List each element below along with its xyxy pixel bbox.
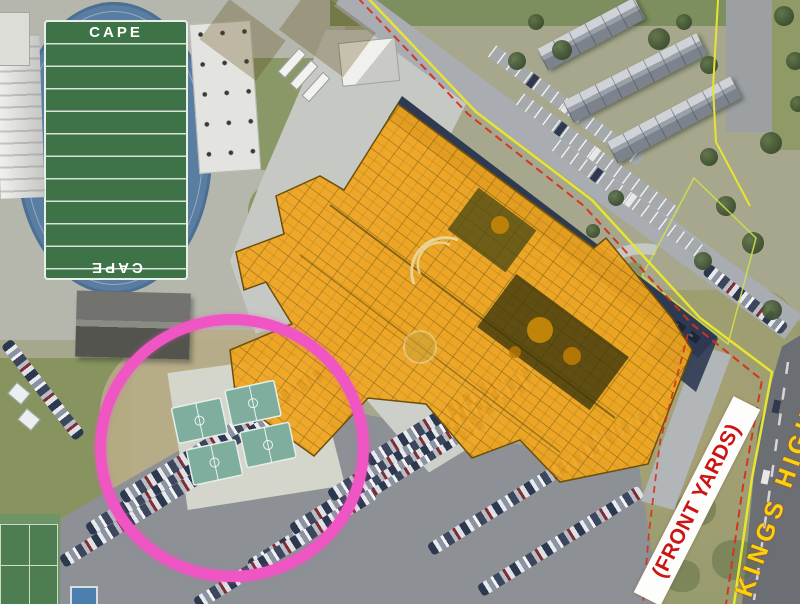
aerial-campus-map: CAPE CAPE [0, 0, 800, 604]
courtyard-planting [527, 317, 553, 343]
tree [676, 14, 692, 30]
small-building [338, 37, 400, 87]
courtyard-planting [509, 346, 521, 358]
tree [700, 148, 718, 166]
tree [508, 52, 526, 70]
building-topleft [0, 12, 30, 66]
tree [694, 252, 712, 270]
endzone-label-bottom: CAPE [46, 259, 186, 276]
tree [700, 56, 718, 74]
grandstand-east [189, 20, 261, 174]
tree [552, 40, 572, 60]
tree [790, 96, 800, 112]
auditorium-seating-arc [412, 238, 458, 284]
tree [528, 14, 544, 30]
auditorium-seating-arc [418, 243, 450, 274]
tree [586, 224, 600, 238]
blue-tarp [70, 586, 98, 604]
road-topright [726, 0, 772, 132]
tree [774, 6, 794, 26]
courtyard-planting [491, 216, 509, 234]
hockey-court [0, 524, 58, 604]
tree [742, 232, 764, 254]
tree [716, 196, 736, 216]
tree [648, 28, 670, 50]
courtyard-planting [563, 347, 581, 365]
tree [760, 132, 782, 154]
courtyard-central [448, 188, 537, 273]
annotation-circle [95, 314, 369, 582]
endzone-label-top: CAPE [46, 24, 186, 41]
football-field: CAPE CAPE [44, 20, 188, 280]
tree [786, 52, 800, 70]
cul-de-sac-island [624, 262, 644, 282]
tree [762, 300, 782, 320]
tree [608, 190, 624, 206]
